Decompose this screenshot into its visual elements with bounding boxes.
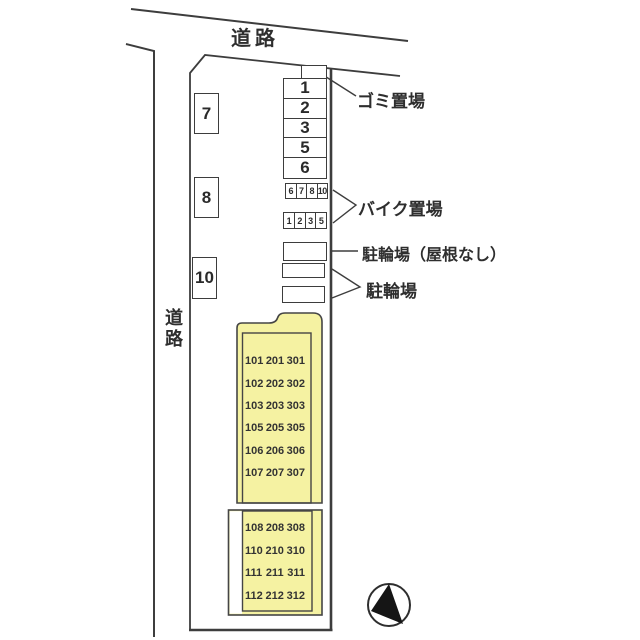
parking-space-1: 1 [284, 79, 326, 99]
room-number: 310 [287, 545, 305, 557]
building-lower-corridor [230, 511, 243, 614]
room-number: 205 [266, 422, 284, 434]
parking-column-right: 1 2 3 5 6 [283, 78, 327, 179]
room-number: 301 [287, 355, 305, 367]
road-label-left: 道路 [160, 308, 186, 350]
room-number: 210 [266, 545, 284, 557]
bike-slot: 7 [297, 184, 308, 198]
room-number: 306 [287, 445, 305, 457]
room-number: 305 [287, 422, 305, 434]
room-row: 103 203 303 [245, 395, 305, 417]
room-number: 208 [266, 522, 284, 534]
room-number: 206 [266, 445, 284, 457]
room-number: 311 [287, 567, 305, 579]
room-number: 110 [245, 545, 263, 557]
bike-slot: 3 [306, 213, 317, 228]
room-row: 108 208 308 [245, 517, 305, 540]
parking-space-6: 6 [284, 158, 326, 178]
room-number: 302 [287, 378, 305, 390]
room-number: 105 [245, 422, 263, 434]
room-number: 112 [245, 590, 263, 602]
bike-slot: 10 [318, 184, 328, 198]
garbage-area-box [301, 65, 327, 79]
bike-pointer-line [333, 190, 356, 223]
site-plan: 道路 道路 7 8 10 1 2 3 5 6 ゴミ置場 6 7 8 10 1 2… [0, 0, 640, 640]
parking-space-5: 5 [284, 138, 326, 158]
room-row: 112 212 312 [245, 585, 305, 608]
room-number: 108 [245, 522, 263, 534]
north-arrow-icon [368, 584, 410, 626]
parking-space-3: 3 [284, 119, 326, 139]
bicycle-parking-no-roof-box [283, 242, 327, 261]
room-number: 312 [287, 590, 305, 602]
room-row: 101 201 301 [245, 350, 305, 372]
building-upper-room-grid: 101 201 301 102 202 302 103 203 303 105 … [245, 350, 305, 484]
room-number: 101 [245, 355, 263, 367]
road-left-edge-line [126, 44, 154, 637]
room-number: 107 [245, 467, 263, 479]
room-number: 111 [245, 567, 262, 579]
room-number: 307 [287, 467, 305, 479]
bicycle-pointer-line [332, 269, 360, 298]
parking-space-2: 2 [284, 99, 326, 119]
room-row: 105 205 305 [245, 417, 305, 439]
road-label-top: 道路 [231, 22, 279, 51]
bike-slot: 1 [284, 213, 295, 228]
room-number: 308 [287, 522, 305, 534]
room-row: 107 207 307 [245, 462, 305, 484]
bike-parking-row-top: 6 7 8 10 [285, 183, 328, 199]
parking-space-7: 7 [194, 93, 219, 134]
room-row: 102 202 302 [245, 372, 305, 394]
bike-parking-label: バイク置場 [358, 195, 443, 220]
room-number: 303 [287, 400, 305, 412]
room-number: 201 [266, 355, 284, 367]
room-row: 110 210 310 [245, 540, 305, 563]
room-number: 202 [266, 378, 284, 390]
bike-slot: 8 [307, 184, 318, 198]
bicycle-parking-box [282, 286, 325, 303]
room-number: 203 [266, 400, 284, 412]
parking-space-8: 8 [194, 177, 219, 218]
bicycle-parking-label: 駐輪場 [366, 277, 417, 302]
room-number: 211 [266, 567, 284, 579]
bicycle-parking-box [282, 263, 325, 278]
room-number: 207 [266, 467, 284, 479]
room-row: 106 206 306 [245, 440, 305, 462]
room-number: 102 [245, 378, 263, 390]
room-number: 103 [245, 400, 263, 412]
room-row: 111 211 311 [245, 562, 305, 585]
garbage-area-label: ゴミ置場 [357, 87, 425, 112]
bike-slot: 5 [316, 213, 326, 228]
bike-parking-row-bottom: 1 2 3 5 [283, 212, 327, 229]
bike-slot: 2 [295, 213, 306, 228]
building-lower-room-grid: 108 208 308 110 210 310 111 211 311 112 … [245, 517, 305, 607]
parking-space-10: 10 [192, 257, 217, 299]
bike-slot: 6 [286, 184, 297, 198]
room-number: 106 [245, 445, 263, 457]
bicycle-parking-no-roof-label: 駐輪場（屋根なし） [362, 241, 506, 265]
room-number: 212 [266, 590, 284, 602]
